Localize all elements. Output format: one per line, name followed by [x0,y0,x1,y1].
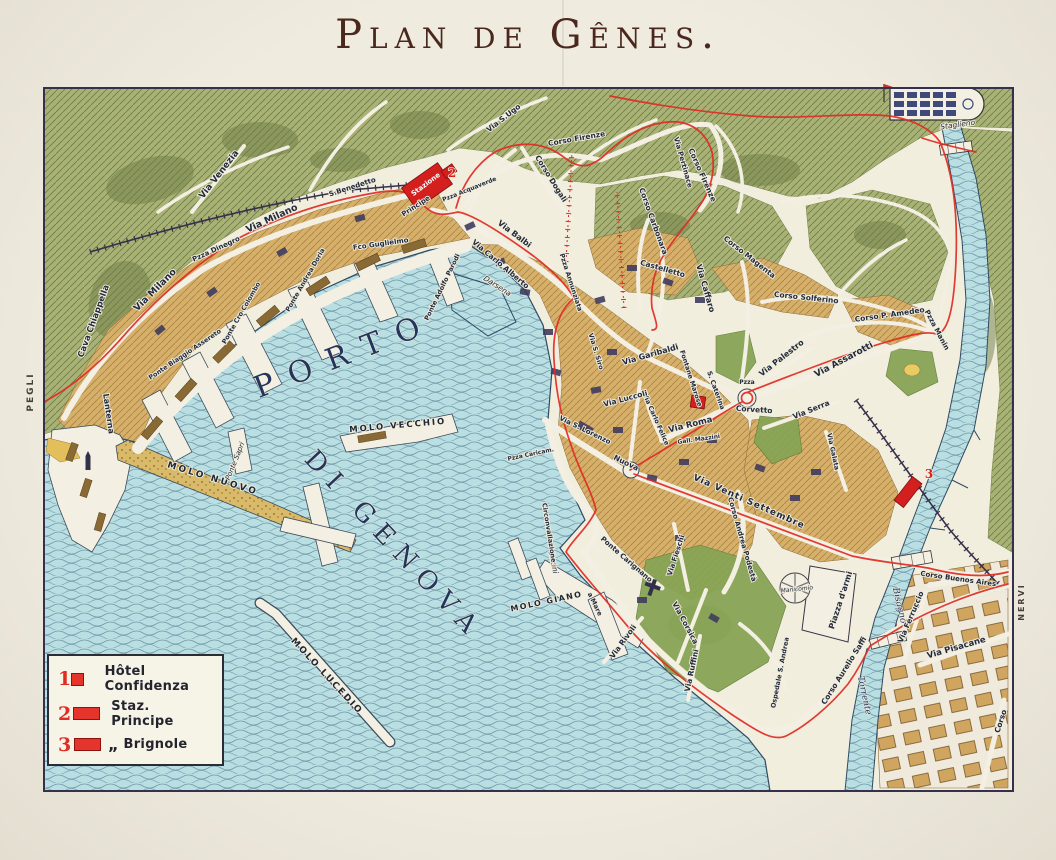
map-label-pegli: PEGLI [26,372,36,411]
legend-label: Staz. Principe [111,699,213,729]
legend-label: Brignole [124,737,188,752]
postcard-page: Plan de Gênes. [0,0,1056,860]
manin-pond [904,364,920,376]
red-swatch-icon [71,673,84,686]
red-swatch-icon [73,707,100,720]
legend-row-hotel-confidenza: 1 Hôtel Confidenza [58,664,213,694]
legend-number: 1 [58,668,71,690]
map-label-nervi: NERVI [1017,583,1026,621]
map-label-pzza-corvetto: Pzza [739,379,754,386]
legend-number: 2 [58,703,73,725]
legend-ditto: „ [108,735,119,754]
legend-row-staz-principe: 2 Staz. Principe [58,699,213,729]
map-label-marker-3: 3 [925,467,933,481]
staglieno-cemetery [884,84,984,120]
legend: 1 Hôtel Confidenza 2 Staz. Principe 3 „ … [47,654,224,766]
legend-number: 3 [58,734,74,756]
red-swatch-icon [74,738,101,751]
legend-row-staz-brignole: 3 „ Brignole [58,734,213,756]
map-label-marker-2: 2 [448,166,456,180]
legend-label: Hôtel Confidenza [105,664,213,694]
